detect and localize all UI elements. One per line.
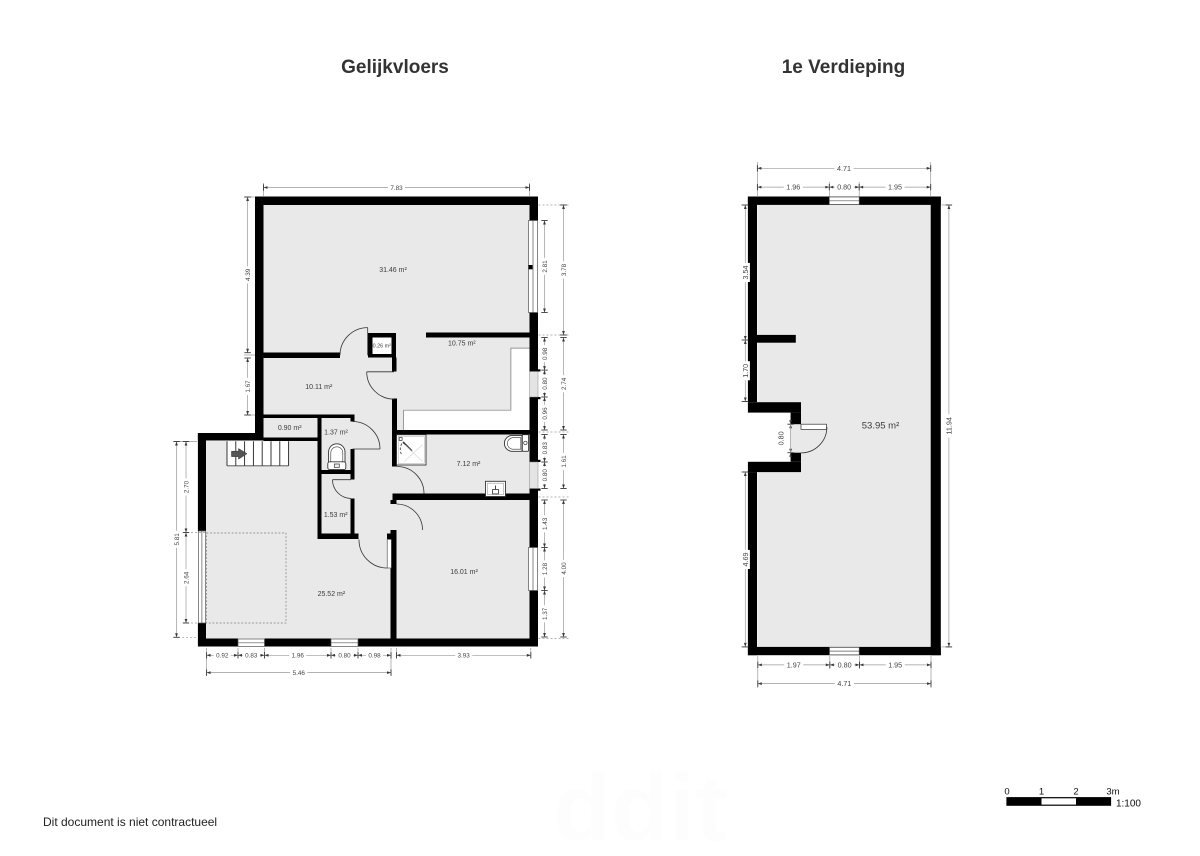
svg-text:5.46: 5.46: [293, 670, 306, 677]
svg-text:2.70: 2.70: [183, 480, 190, 493]
svg-text:3.78: 3.78: [561, 263, 568, 276]
svg-text:0.92: 0.92: [216, 653, 229, 660]
svg-text:0.80: 0.80: [338, 653, 351, 660]
svg-text:7.83: 7.83: [390, 185, 403, 192]
svg-text:1.28: 1.28: [542, 562, 549, 575]
svg-text:1.37 m²: 1.37 m²: [324, 429, 348, 436]
svg-text:Gelijkvloers: Gelijkvloers: [341, 57, 449, 78]
svg-text:1.95: 1.95: [888, 183, 902, 192]
svg-text:25.52 m²: 25.52 m²: [318, 591, 346, 598]
svg-text:1.67: 1.67: [245, 380, 252, 393]
svg-text:1.97: 1.97: [787, 661, 801, 670]
svg-text:0.83: 0.83: [542, 442, 549, 455]
svg-text:1.43: 1.43: [542, 517, 549, 530]
svg-text:1.95: 1.95: [888, 661, 902, 670]
svg-text:3.54: 3.54: [741, 266, 750, 280]
svg-text:1.37: 1.37: [542, 607, 549, 620]
svg-text:0.96: 0.96: [542, 407, 549, 420]
svg-text:5.81: 5.81: [174, 533, 181, 546]
svg-text:4.39: 4.39: [245, 268, 252, 281]
svg-text:4.71: 4.71: [837, 164, 851, 173]
svg-text:0.90 m²: 0.90 m²: [278, 425, 302, 432]
svg-text:3m: 3m: [1106, 787, 1119, 798]
svg-text:0.26 m²: 0.26 m²: [373, 343, 391, 349]
svg-text:ddit: ddit: [553, 755, 727, 851]
svg-text:2: 2: [1073, 787, 1078, 798]
svg-text:4.00: 4.00: [561, 562, 568, 575]
svg-text:1:100: 1:100: [1116, 799, 1141, 810]
svg-text:0: 0: [1004, 787, 1009, 798]
svg-text:0.83: 0.83: [245, 653, 258, 660]
svg-text:10.11 m²: 10.11 m²: [305, 384, 333, 391]
svg-text:0.80: 0.80: [542, 469, 549, 482]
svg-text:7.12 m²: 7.12 m²: [457, 461, 481, 468]
svg-text:1.53 m²: 1.53 m²: [324, 512, 348, 519]
svg-text:Dit document is niet contractu: Dit document is niet contractueel: [43, 815, 217, 829]
svg-text:0.80: 0.80: [838, 661, 852, 670]
svg-text:1.70: 1.70: [741, 364, 750, 378]
svg-text:0.80: 0.80: [542, 377, 549, 390]
svg-text:53.95 m²: 53.95 m²: [862, 421, 900, 432]
svg-text:2.64: 2.64: [183, 571, 190, 584]
svg-text:16.01 m²: 16.01 m²: [450, 569, 478, 576]
svg-text:31.46 m²: 31.46 m²: [379, 267, 407, 274]
svg-text:1: 1: [1039, 787, 1044, 798]
svg-text:4.69: 4.69: [741, 553, 750, 567]
svg-text:1.61: 1.61: [561, 455, 568, 468]
svg-text:0.98: 0.98: [542, 347, 549, 360]
svg-text:10.75 m²: 10.75 m²: [448, 340, 476, 347]
svg-text:3.93: 3.93: [457, 653, 470, 660]
svg-text:2.74: 2.74: [561, 377, 568, 390]
svg-text:1.96: 1.96: [786, 183, 800, 192]
svg-text:2.81: 2.81: [542, 260, 549, 273]
svg-text:11.94: 11.94: [945, 417, 954, 434]
svg-text:1e Verdieping: 1e Verdieping: [782, 57, 906, 78]
svg-text:1.96: 1.96: [292, 653, 305, 660]
svg-text:0.80: 0.80: [777, 431, 786, 445]
svg-text:4.71: 4.71: [837, 679, 851, 688]
svg-text:0.98: 0.98: [368, 653, 381, 660]
svg-text:0.80: 0.80: [837, 183, 851, 192]
